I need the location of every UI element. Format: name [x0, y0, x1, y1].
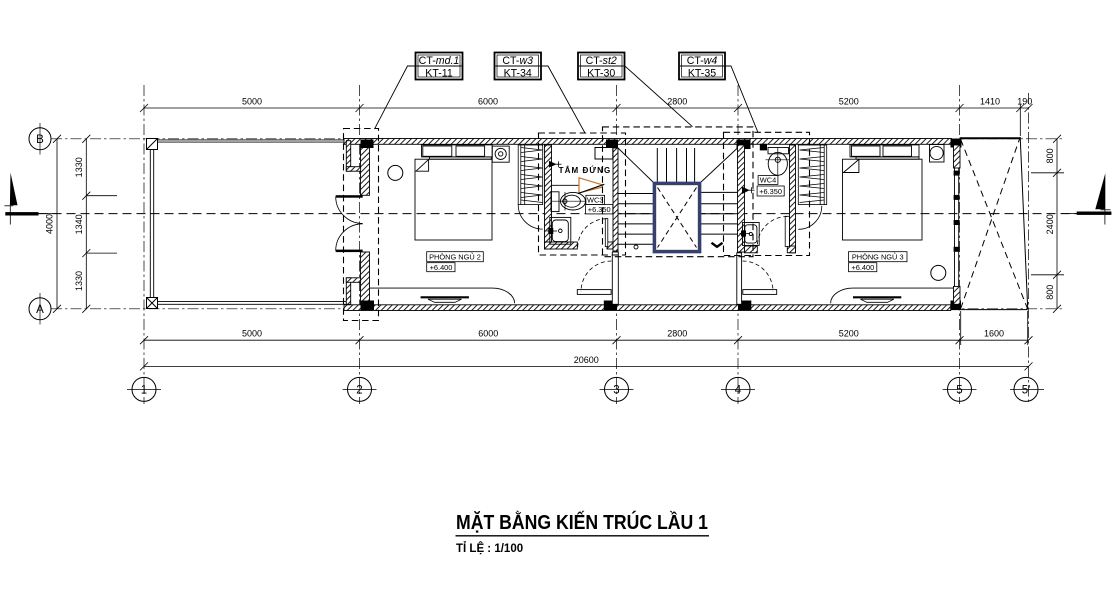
svg-text:2400: 2400 [1045, 214, 1055, 234]
svg-text:TỈ LỆ : 1/100: TỈ LỆ : 1/100 [456, 542, 523, 555]
svg-text:+6.350: +6.350 [588, 205, 611, 214]
svg-text:800: 800 [1045, 148, 1055, 163]
svg-text:MẶT BẰNG KIẾN TRÚC LẦU 1: MẶT BẰNG KIẾN TRÚC LẦU 1 [456, 510, 708, 534]
svg-text:20600: 20600 [574, 355, 599, 365]
svg-text:CT-w3: CT-w3 [502, 55, 533, 67]
svg-text:2: 2 [356, 385, 362, 397]
svg-text:CT-st2: CT-st2 [586, 55, 617, 67]
svg-text:KT-30: KT-30 [587, 68, 615, 80]
svg-text:B: B [36, 134, 44, 146]
svg-text:+6.400: +6.400 [430, 263, 453, 272]
svg-text:PHÒNG NGỦ 2: PHÒNG NGỦ 2 [429, 252, 481, 261]
svg-text:190: 190 [1017, 97, 1032, 107]
svg-text:3: 3 [613, 385, 619, 397]
svg-text:1330: 1330 [74, 157, 84, 177]
svg-text:6000: 6000 [478, 97, 498, 107]
svg-text:4: 4 [735, 385, 742, 397]
svg-text:1600: 1600 [984, 329, 1004, 339]
svg-text:2800: 2800 [667, 329, 687, 339]
svg-text:TẮM ĐỨNG: TẮM ĐỨNG [559, 166, 612, 175]
svg-text:5200: 5200 [839, 329, 859, 339]
svg-text:1330: 1330 [74, 271, 84, 291]
svg-text:5200: 5200 [839, 97, 859, 107]
svg-text:5': 5' [1022, 385, 1031, 397]
svg-text:800: 800 [1045, 285, 1055, 300]
svg-text:PHÒNG NGỦ 3: PHÒNG NGỦ 3 [852, 252, 904, 261]
svg-text:6000: 6000 [478, 329, 498, 339]
svg-text:1340: 1340 [74, 214, 84, 234]
svg-text:CT-md.1: CT-md.1 [419, 55, 460, 67]
svg-text:+6.350: +6.350 [759, 187, 782, 196]
svg-text:5000: 5000 [242, 97, 262, 107]
svg-text:CT-w4: CT-w4 [687, 55, 718, 67]
svg-text:KT-35: KT-35 [688, 68, 716, 80]
svg-text:WC3: WC3 [587, 196, 603, 205]
svg-text:5000: 5000 [242, 329, 262, 339]
svg-text:KT-34: KT-34 [504, 68, 532, 80]
svg-text:1410: 1410 [980, 97, 1000, 107]
svg-text:1: 1 [141, 385, 147, 397]
svg-text:A: A [36, 304, 44, 316]
svg-text:+6.400: +6.400 [851, 263, 874, 272]
svg-text:WC4: WC4 [760, 176, 776, 185]
svg-text:2800: 2800 [667, 97, 687, 107]
svg-text:5: 5 [956, 385, 962, 397]
svg-text:KT-11: KT-11 [425, 68, 453, 80]
svg-text:4000: 4000 [45, 214, 55, 234]
